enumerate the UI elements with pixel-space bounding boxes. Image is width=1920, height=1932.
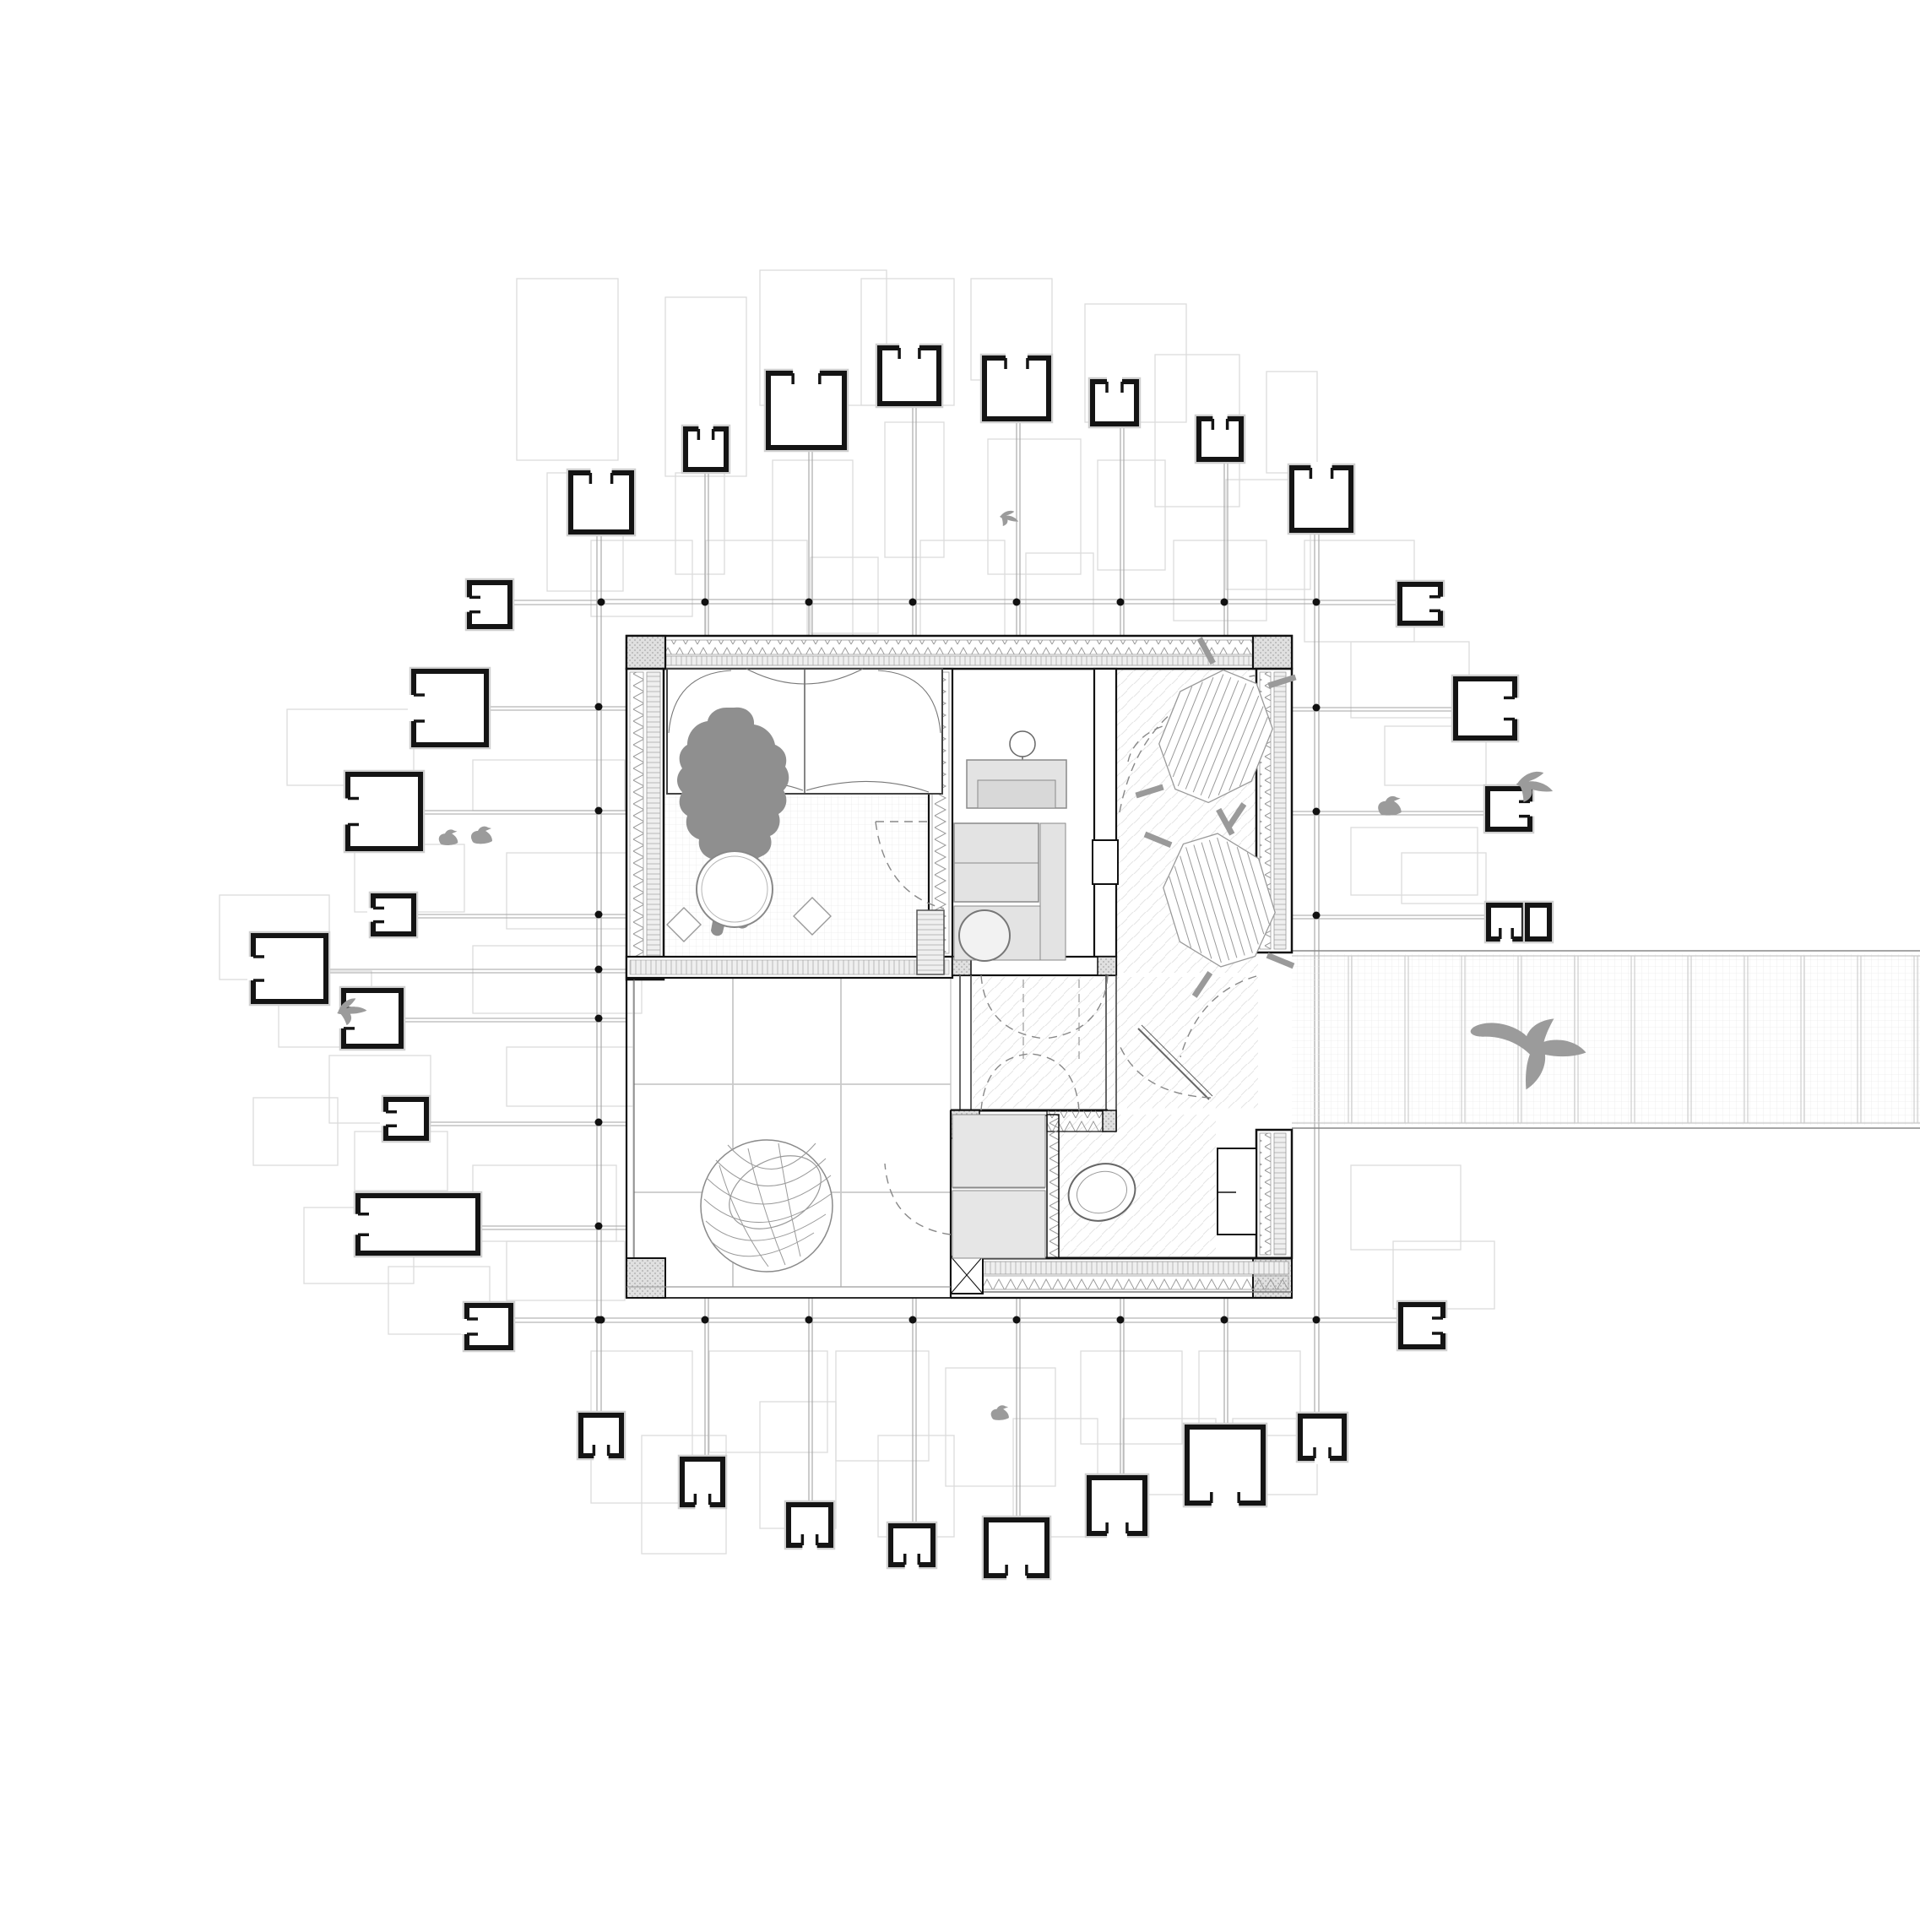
grid-node-dot xyxy=(595,1119,603,1126)
grid-node-dot xyxy=(702,1316,709,1324)
ghost-rectangle xyxy=(811,557,878,633)
nest-box-square xyxy=(380,1096,430,1142)
nest-box-square xyxy=(876,342,942,407)
grid-node-dot xyxy=(805,599,813,606)
grid-node-dot xyxy=(1313,912,1321,920)
grid-node-dot xyxy=(1313,808,1321,816)
perched-bird-silhouette xyxy=(471,827,492,844)
nest-box-square xyxy=(567,467,635,535)
core-kitchen xyxy=(954,731,1066,961)
nest-box-square xyxy=(1297,1413,1348,1464)
grid-node-dot xyxy=(595,911,603,919)
nest-box-square xyxy=(679,1456,726,1511)
deck-door-swing xyxy=(885,1164,951,1235)
nest-box-square xyxy=(461,1302,514,1351)
nest-box-square xyxy=(1184,1424,1266,1509)
grid-node-dot xyxy=(595,966,603,974)
ghost-rectangle xyxy=(517,279,618,460)
grid-node-dot xyxy=(595,1015,603,1023)
grid-node-dot xyxy=(595,1223,603,1230)
ghost-rectangle xyxy=(1081,1351,1182,1444)
walkway-deck xyxy=(1292,954,1920,1125)
nest-box-square xyxy=(887,1522,936,1571)
ghost-rectangle xyxy=(591,540,692,616)
grid-node-dot xyxy=(1221,599,1228,606)
nest-box-square xyxy=(785,1501,834,1551)
grid-node-dot xyxy=(805,1316,813,1324)
ghost-rectangle xyxy=(885,422,944,557)
basket-chair xyxy=(701,1140,833,1272)
nest-box-square xyxy=(464,579,513,630)
nest-box-square xyxy=(1452,676,1521,741)
grid-node-dot xyxy=(1221,1316,1228,1324)
perched-bird-silhouette xyxy=(1378,796,1402,816)
cabin-floor-plan xyxy=(626,636,1295,1298)
perched-bird-silhouette xyxy=(439,829,458,845)
site-plan-drawing xyxy=(0,0,1920,1932)
grid-node-dot xyxy=(1313,1316,1321,1324)
ghost-rectangle xyxy=(473,760,625,811)
nest-box-square xyxy=(578,1412,625,1462)
nest-box-square xyxy=(983,1517,1050,1582)
grid-node-dot xyxy=(909,599,917,606)
nest-box-square xyxy=(1086,1474,1148,1539)
ghost-rectangle xyxy=(836,1351,929,1461)
nest-box-square xyxy=(408,668,490,748)
ghost-rectangle xyxy=(675,473,724,574)
grid-node-dot xyxy=(1117,599,1125,606)
nest-box-square xyxy=(1397,1301,1449,1350)
ghost-rectangle xyxy=(946,1368,1055,1486)
grid-node-dot xyxy=(598,1316,605,1324)
nest-box-square xyxy=(342,771,424,852)
ghost-rectangle xyxy=(1351,828,1478,895)
grid-node-dot xyxy=(1013,599,1021,606)
side-table xyxy=(697,851,773,927)
ghost-rectangle xyxy=(988,439,1081,574)
floor-plan-stage xyxy=(0,0,1920,1932)
ghost-rectangle xyxy=(253,1098,338,1165)
grid-node-dot xyxy=(1013,1316,1021,1324)
nest-box-square xyxy=(765,367,848,451)
nest-box-square xyxy=(352,1192,481,1256)
perched-bird-silhouette xyxy=(991,1405,1009,1420)
nest-box-square xyxy=(367,893,417,937)
nest-box-square xyxy=(1524,902,1553,942)
nest-box-square xyxy=(1397,581,1446,627)
grid-node-dot xyxy=(702,599,709,606)
nest-box-square xyxy=(1288,462,1354,534)
nest-box-square xyxy=(981,352,1052,422)
walkway-bridge xyxy=(1292,951,1920,1128)
ghost-rectangle xyxy=(473,946,642,1013)
ghost-rectangle xyxy=(507,1241,625,1300)
grid-node-dot xyxy=(909,1316,917,1324)
grid-node-dot xyxy=(1117,1316,1125,1324)
ghost-rectangle xyxy=(1266,372,1317,473)
nest-box-square xyxy=(682,423,729,473)
ghost-rectangle xyxy=(507,1047,633,1106)
ghost-rectangle xyxy=(1402,853,1486,904)
grid-node-dot xyxy=(1313,704,1321,712)
nest-box-square xyxy=(1485,902,1527,945)
grid-node-dot xyxy=(598,599,605,606)
nest-box-square xyxy=(1196,413,1245,463)
grid-node-dot xyxy=(595,807,603,815)
ghost-rectangle xyxy=(920,540,1005,642)
nest-box-square xyxy=(1089,376,1140,427)
grid-node-dot xyxy=(1313,599,1321,606)
ghost-rectangle xyxy=(1393,1241,1494,1309)
ghost-rectangle xyxy=(1351,1165,1461,1250)
nest-box-square xyxy=(247,932,329,1005)
grid-node-dot xyxy=(595,703,603,711)
ghost-rectangle xyxy=(1174,540,1266,621)
